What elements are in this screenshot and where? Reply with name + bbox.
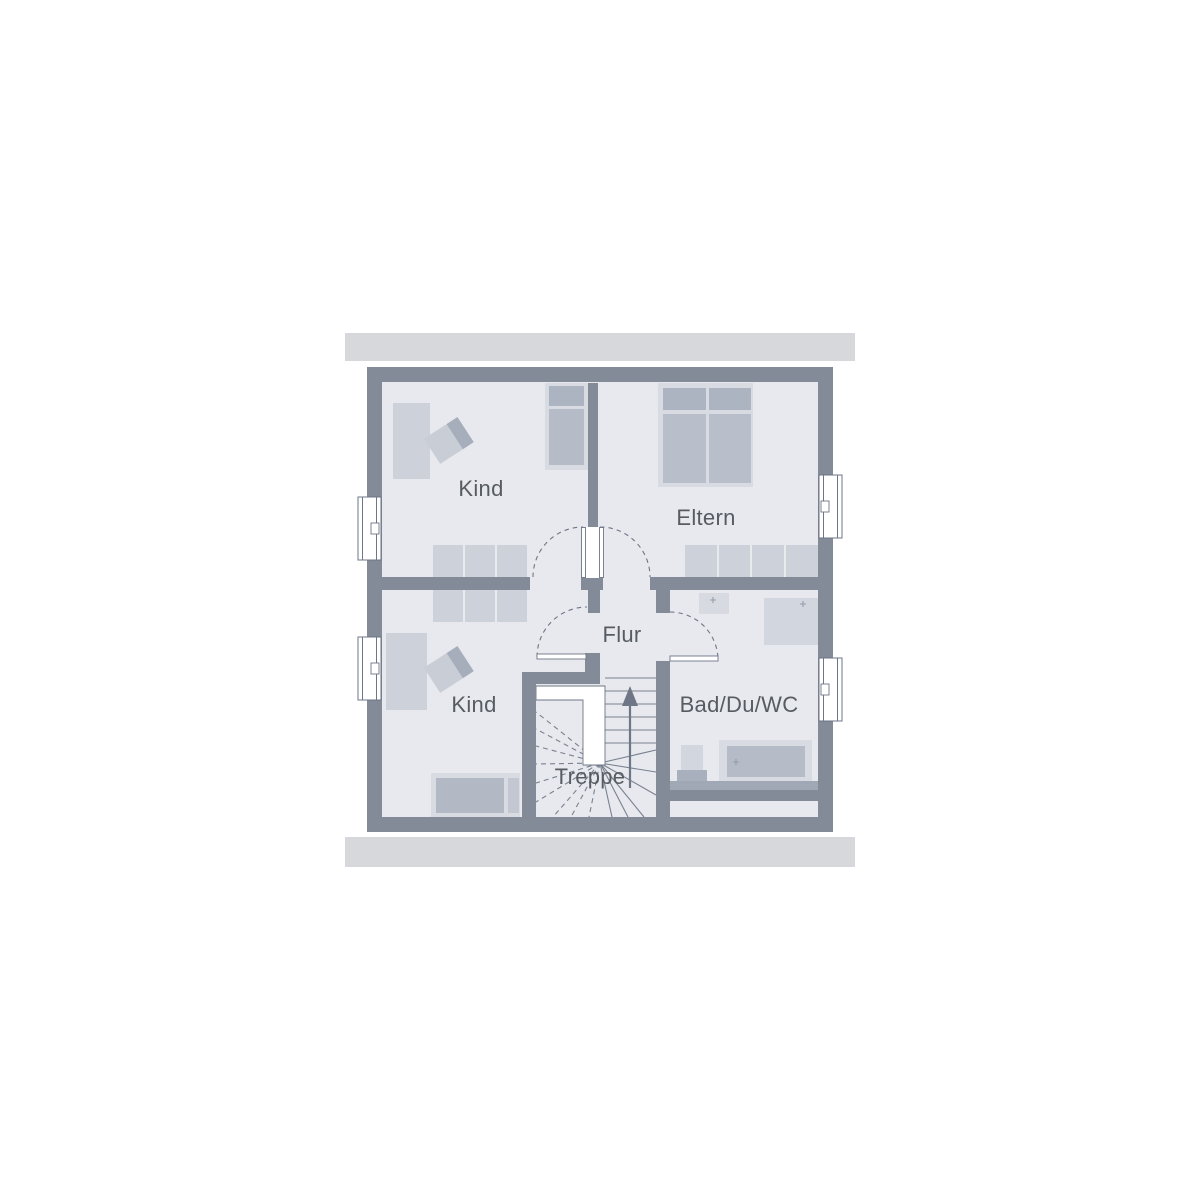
bed-pillow — [663, 388, 706, 410]
room-label-eltern: Eltern — [676, 505, 735, 530]
bed-pillow — [709, 388, 751, 410]
floor-plan-page: Kind Eltern Flur Kind Treppe Bad/Du/WC — [0, 0, 1200, 1200]
room-label-flur: Flur — [602, 622, 641, 647]
bed-pillow — [508, 778, 519, 813]
roof-band-bottom — [345, 837, 855, 867]
bed-mattress — [436, 778, 504, 813]
room-label-treppe: Treppe — [555, 764, 626, 789]
sideboard — [433, 545, 527, 577]
bed-mattress — [549, 409, 584, 465]
window-icon — [358, 637, 381, 700]
window-icon — [819, 658, 842, 721]
window-icon — [358, 497, 381, 560]
door-leaf — [537, 654, 586, 659]
window-icon — [819, 475, 842, 538]
room-label-bad: Bad/Du/WC — [680, 692, 799, 717]
bed-mattress — [663, 414, 706, 483]
wardrobe — [386, 633, 427, 710]
wardrobe — [393, 403, 430, 479]
roof-band-top — [345, 333, 855, 361]
room-label-kind-lower: Kind — [451, 692, 496, 717]
room-label-kind-upper: Kind — [458, 476, 503, 501]
wc — [681, 745, 703, 771]
door-jamb — [586, 527, 600, 578]
door-leaf — [670, 656, 718, 661]
floor-plan-drawing: Kind Eltern Flur Kind Treppe Bad/Du/WC — [0, 0, 1200, 1200]
bed-pillow — [549, 386, 584, 406]
sideboard — [433, 590, 527, 622]
shower — [764, 598, 818, 645]
door-leaf — [600, 528, 604, 578]
bed-mattress — [709, 414, 751, 483]
door-leaf — [582, 528, 586, 578]
washbasin — [699, 593, 729, 614]
